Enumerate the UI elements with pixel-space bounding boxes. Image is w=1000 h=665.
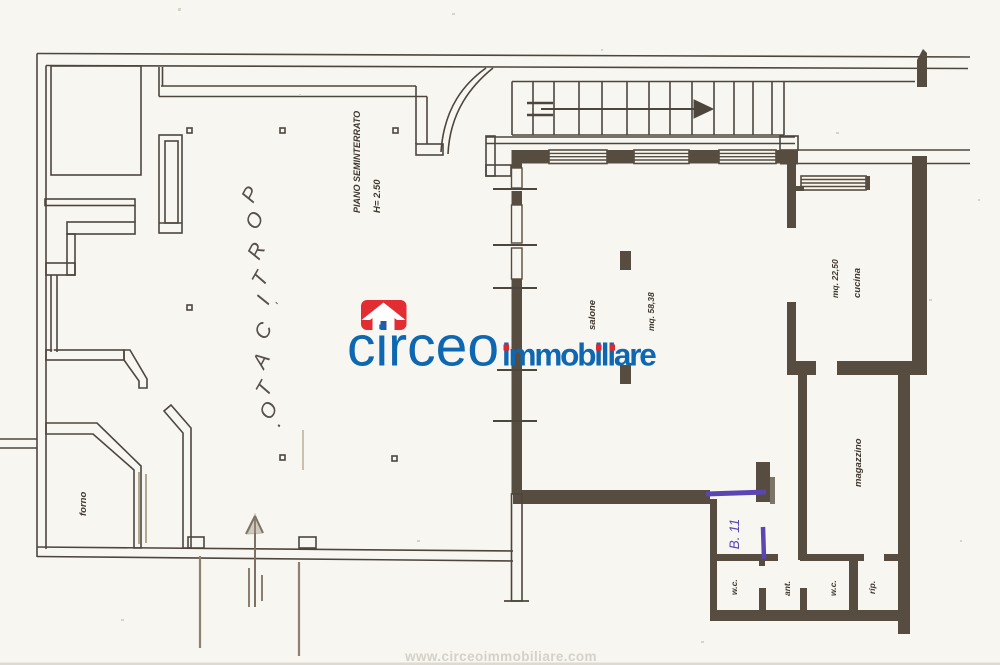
svg-text:salone: salone — [587, 299, 598, 330]
svg-text:mq. 22,50: mq. 22,50 — [830, 259, 840, 298]
svg-text:www.circeoimmobiliare.com: www.circeoimmobiliare.com — [404, 649, 597, 664]
svg-text:cucina: cucina — [852, 268, 863, 298]
svg-text:rip.: rip. — [867, 581, 877, 594]
svg-text:immobiliare: immobiliare — [502, 337, 656, 373]
svg-text:w.c.: w.c. — [729, 579, 739, 595]
svg-text:forno: forno — [78, 492, 89, 516]
svg-text:B. 11: B. 11 — [727, 519, 742, 550]
svg-text:magazzino: magazzino — [853, 438, 864, 487]
svg-text:circeo: circeo — [347, 315, 499, 379]
svg-text:PIANO SEMINTERRATO: PIANO SEMINTERRATO — [352, 111, 362, 213]
svg-text:H= 2.50: H= 2.50 — [372, 179, 383, 213]
svg-text:ant.: ant. — [782, 581, 792, 596]
svg-text:w.c.: w.c. — [828, 580, 838, 596]
svg-text:mq. 58,38: mq. 58,38 — [646, 292, 656, 331]
